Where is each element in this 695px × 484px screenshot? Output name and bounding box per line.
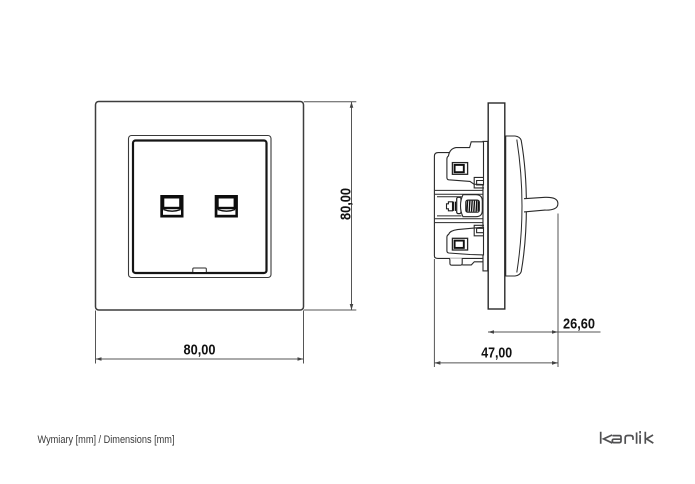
svg-text:47,00: 47,00 [481, 345, 512, 362]
svg-text:Wymiary [mm] / Dimensions [mm]: Wymiary [mm] / Dimensions [mm] [38, 434, 175, 446]
svg-text:80,00: 80,00 [338, 188, 355, 220]
svg-text:26,60: 26,60 [563, 316, 595, 333]
svg-text:80,00: 80,00 [184, 342, 216, 359]
